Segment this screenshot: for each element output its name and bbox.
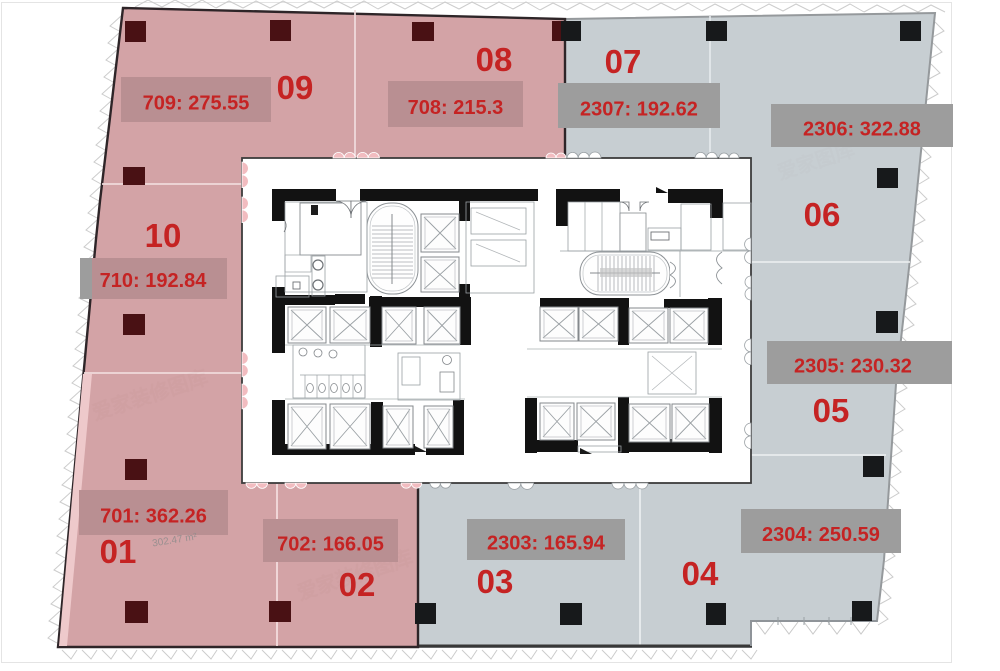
svg-text:710: 192.84: 710: 192.84	[100, 270, 208, 292]
svg-text:03: 03	[477, 563, 514, 600]
svg-text:09: 09	[277, 69, 314, 106]
svg-text:701: 362.26: 701: 362.26	[100, 506, 207, 528]
svg-text:08: 08	[476, 41, 513, 78]
svg-text:05: 05	[813, 392, 850, 429]
svg-text:02: 02	[339, 566, 376, 603]
svg-text:04: 04	[682, 555, 719, 592]
svg-text:708: 215.3: 708: 215.3	[408, 97, 504, 119]
svg-text:01: 01	[100, 533, 137, 570]
svg-text:2307: 192.62: 2307: 192.62	[580, 99, 698, 121]
svg-text:2303: 165.94: 2303: 165.94	[487, 533, 606, 555]
svg-text:10: 10	[145, 217, 182, 254]
svg-text:06: 06	[804, 196, 841, 233]
svg-text:2305: 230.32: 2305: 230.32	[794, 356, 912, 378]
svg-text:2306: 322.88: 2306: 322.88	[803, 119, 921, 141]
svg-text:702: 166.05: 702: 166.05	[277, 534, 384, 556]
svg-text:2304: 250.59: 2304: 250.59	[762, 524, 880, 546]
svg-text:07: 07	[605, 43, 642, 80]
svg-text:709: 275.55: 709: 275.55	[143, 93, 250, 115]
